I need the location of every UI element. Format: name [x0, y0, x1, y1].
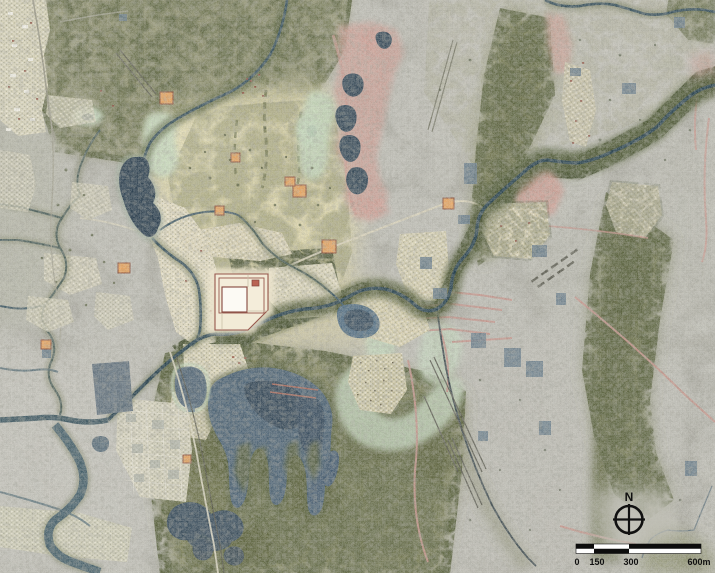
svg-text:600m: 600m — [687, 557, 710, 567]
svg-text:300: 300 — [623, 557, 638, 567]
svg-text:0: 0 — [574, 557, 579, 567]
svg-text:N: N — [625, 490, 634, 504]
svg-text:150: 150 — [589, 557, 604, 567]
